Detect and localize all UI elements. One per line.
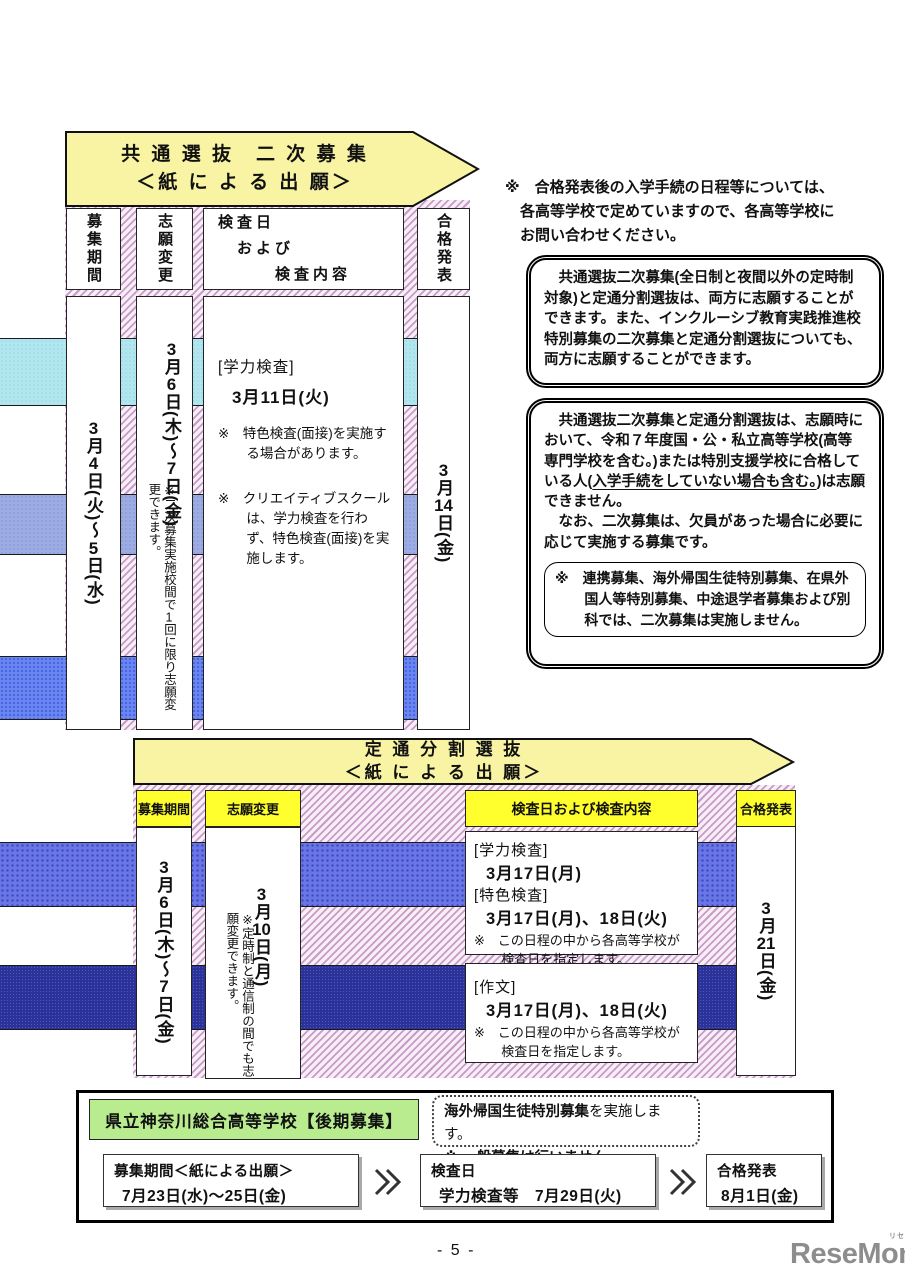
table2-boxa-label2: [特色検査] [474,884,689,905]
sidebar-note-box1: 共通選抜二次募集(全日制と夜間以外の定時制対象)と定通分割選抜は、両方に志願する… [526,255,884,388]
table1-exam-label: [学力検査] [218,355,391,377]
table1-col1-date: 3月4日(火)～5日(水) [81,420,106,606]
table1-header-kensabi: 検査日 および 検査内容 [203,208,404,290]
table2-header-col3-label: 検査日および検査内容 [512,799,652,819]
banner1-title: 共 通 選 抜 二 次 募 集 [121,141,369,169]
banner2-title: 定 通 分 割 選 抜 [365,739,524,762]
table2-header-boshu-kikan: 募集期間 [136,790,192,827]
sidebar-inner-note-text: ※ 連携募集、海外帰国生徒特別募集、在県外国人等特別募集、中途退学者募集および別… [555,568,855,631]
sidebar-box2-paragraph2: なお、二次募集は、欠員があった場合に必要に応じて実施する募集です。 [544,512,866,553]
table1-header-col2-label: 志願変更 [154,213,175,285]
resemom-logo-ruby: リセマム [889,1231,905,1241]
table1-header-col4-label: 合格発表 [433,213,454,285]
school-name-text: 県立神奈川総合高等学校【後期募集】 [105,1108,403,1132]
table2-header-kensabi: 検査日および検査内容 [465,790,698,827]
table2-cell-boshu-kikan: 3月6日(木)～7日(金) [136,827,192,1076]
table2-col2-note: ※定時制と通信制の間でも志願変更できます。 [220,912,254,1084]
table2-boxa-date1: 3月17日(月) [486,860,689,884]
sidebar-box2-paragraph1: 共通選抜二次募集と定通分割選抜は、志願時において、令和７年度国・公・私立高等学校… [544,411,866,512]
double-chevron-icon [372,1164,404,1200]
kaigai-note-line1: 海外帰国生徒特別募集を実施します。 [444,1101,688,1147]
step-kensabi-box: 検査日 学力検査等 7月29日(火) [420,1154,656,1207]
table1-header-col1-label: 募集期間 [83,213,104,285]
banner2-subtitle: ＜紙 に よ る 出 願＞ [345,762,544,785]
table2-col4-date: 3月21日(金) [754,900,779,1001]
double-chevron-icon [667,1164,699,1200]
banner-kyotsu-senbatsu: 共 通 選 抜 二 次 募 集 ＜紙 に よ る 出 願＞ [65,131,480,207]
table2-exam-box: [学力検査] 3月17日(月) [特色検査] 3月17日(月)、18日(火) ※… [465,831,698,955]
kaigai-note-bold: 海外帰国生徒特別募集 [444,1104,589,1120]
table1-exam-date: 3月11日(火) [232,383,391,408]
document-page: 共 通 選 抜 二 次 募 集 ＜紙 に よ る 出 願＞ 募集期間 志願変更 … [0,0,905,1280]
table1-header-boshu-kikan: 募集期間 [66,208,121,290]
banner2-text: 定 通 分 割 選 抜 ＜紙 に よ る 出 願＞ [133,738,795,785]
step-boshu-kikan-box: 募集期間＜紙による出願＞ 7月23日(水)～25日(金) [103,1154,359,1207]
table2-sakubun-box: [作文] 3月17日(月)、18日(火) ※ この日程の中から各高等学校が検査日… [465,963,698,1063]
banner1-subtitle: ＜紙 に よ る 出 願＞ [136,169,353,197]
kaigai-kikoku-note-box: 海外帰国生徒特別募集を実施します。 ※ 一般募集は行いません。 [432,1095,700,1147]
step1-date: 7月23日(水)～25日(金) [122,1184,348,1206]
banner-teitsu-bunkatsu: 定 通 分 割 選 抜 ＜紙 に よ る 出 願＞ [133,738,795,785]
table2-boxa-label1: [学力検査] [474,839,689,860]
table1-cell-shigan-henko: 3月6日(木)～7日(金) ※二次募集実施校間で1回に限り志願変更できます。 [136,296,193,730]
school-name-label: 県立神奈川総合高等学校【後期募集】 [89,1099,419,1140]
table1-cell-kensabi: [学力検査] 3月11日(火) ※ 特色検査(面接)を実施する場合があります。 … [203,296,404,730]
table2-boxb-label1: [作文] [474,976,689,997]
step2-title: 検査日 [431,1160,645,1181]
table2-header-col4-label: 合格発表 [740,799,792,818]
table2-header-col1-label: 募集期間 [138,799,190,818]
sidebar-note-box2: 共通選抜二次募集と定通分割選抜は、志願時において、令和７年度国・公・私立高等学校… [526,398,884,669]
table1-col2-note: ※二次募集実施校間で1回に限り志願変更できます。 [140,483,176,719]
step-gokaku-happyo-box: 合格発表 8月1日(金) [706,1154,822,1207]
resemom-logo: ReseMom. リセマム [790,1238,905,1271]
table2-boxa-date2: 3月17日(月)、18日(火) [486,905,689,929]
table1-exam-note2: ※ クリエイティブスクールは、学力検査を行わず、特色検査(面接)を実施します。 [218,489,391,570]
sidebar-top-note: ※ 合格発表後の入学手続の日程等については、 各高等学校で定めていますので、各高… [505,176,901,248]
table2-boxb-date1: 3月17日(月)、18日(火) [486,997,689,1021]
banner1-text: 共 通 選 抜 二 次 募 集 ＜紙 に よ る 出 願＞ [65,131,480,207]
page-number: - 5 - [437,1242,475,1260]
table1-cell-boshu-kikan: 3月4日(火)～5日(水) [66,296,121,730]
step3-date: 8月1日(金) [721,1184,811,1206]
table1-exam-note1: ※ 特色検査(面接)を実施する場合があります。 [218,424,391,465]
step2-date: 学力検査等 7月29日(火) [439,1184,645,1206]
table1-header-shigan-henko: 志願変更 [136,208,193,290]
table2-header-shigan-henko: 志願変更 [205,790,301,827]
arrow-step1-to-step2 [372,1164,404,1205]
table2-cell-gokaku-happyo: 3月21日(金) [736,826,796,1076]
table2-boxb-note: ※ この日程の中から各高等学校が検査日を指定します。 [474,1024,689,1062]
table2-header-gokaku-happyo: 合格発表 [736,790,796,827]
sidebar-box2-underlined: 入学手続をしていない場合も含む。 [592,474,816,490]
table2-col1-date: 3月6日(木)～7日(金) [152,859,177,1045]
table1-header-col3-label: 検査日 および 検査内容 [204,210,351,289]
step3-title: 合格発表 [717,1160,811,1181]
sidebar-inner-note-box: ※ 連携募集、海外帰国生徒特別募集、在県外国人等特別募集、中途退学者募集および別… [544,562,866,637]
table1-cell-gokaku-happyo: 3月14日(金) [417,296,470,730]
table1-header-gokaku-happyo: 合格発表 [417,208,470,290]
arrow-step2-to-step3 [667,1164,699,1205]
resemom-logo-text: ReseMom. [790,1238,905,1270]
step1-title: 募集期間＜紙による出願＞ [114,1160,348,1181]
sidebar-box1-text: 共通選抜二次募集(全日制と夜間以外の定時制対象)と定通分割選抜は、両方に志願する… [544,268,866,371]
table2-header-col2-label: 志願変更 [227,799,279,818]
table2-cell-shigan-henko: 3月10日(月) ※定時制と通信制の間でも志願変更できます。 [205,827,301,1079]
table1-col4-date: 3月14日(金) [431,462,456,563]
